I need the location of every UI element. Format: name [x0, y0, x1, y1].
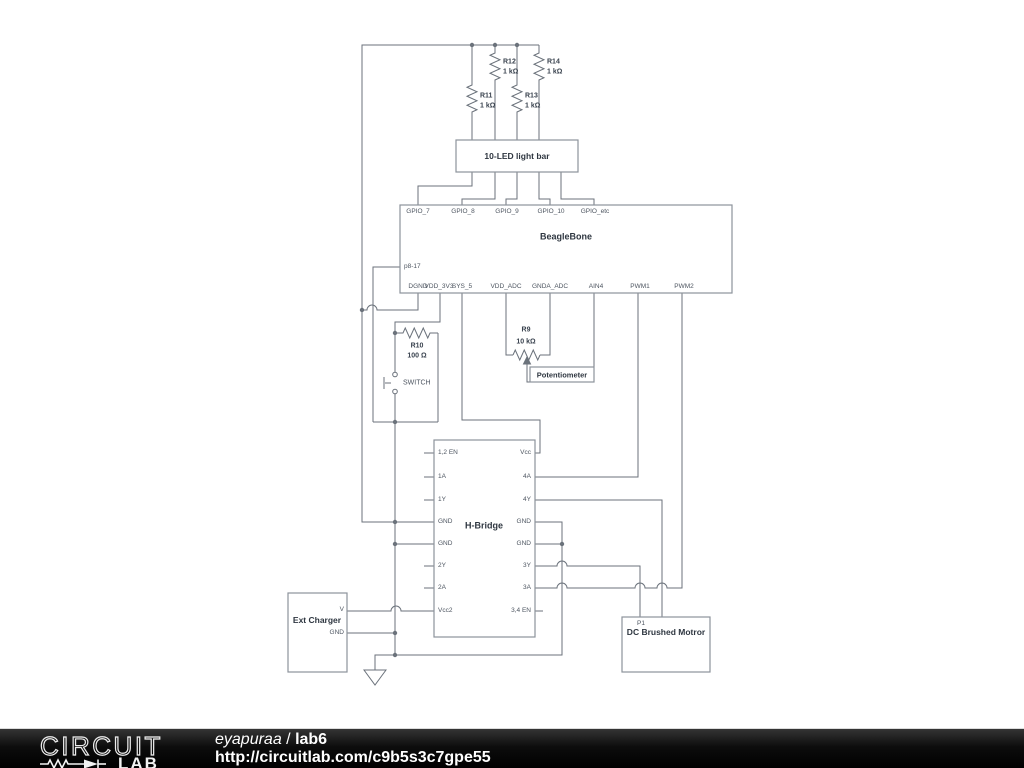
ext-charger-label: Ext Charger	[293, 616, 341, 625]
diode-icon	[84, 760, 98, 768]
beaglebone-label: BeagleBone	[540, 233, 592, 242]
wire-p8-17	[373, 267, 400, 422]
hb-pin-4a: 4A	[523, 474, 531, 481]
pin-gpio7: GPIO_7	[406, 209, 429, 216]
wire-4y-motor	[535, 500, 662, 617]
project-name: lab6	[295, 731, 327, 748]
hb-pin-4y: 4Y	[523, 497, 531, 504]
ext-charger-pin-v: V	[340, 607, 344, 614]
wire-3y-motor	[535, 561, 640, 617]
circuitlab-schematic-page: R11 1 kΩ R12 1 kΩ R13 1 kΩ R14 1 kΩ R10 …	[0, 0, 1024, 768]
component-outlines	[288, 140, 732, 672]
switch-label: SWITCH	[403, 380, 431, 387]
wire-gpio9	[506, 172, 517, 205]
beaglebone-box	[400, 205, 732, 293]
switch-symbol	[384, 333, 397, 422]
hb-pin-2y: 2Y	[438, 563, 446, 570]
ground-symbol	[364, 670, 386, 685]
footer-title: eyapuraa / lab6	[215, 731, 327, 749]
hb-pin-34en: 3,4 EN	[511, 608, 531, 615]
hbridge-label: H-Bridge	[465, 522, 503, 531]
wire-extv-vcc2	[347, 606, 434, 611]
pin-gnda-adc: GNDA_ADC	[532, 284, 568, 291]
hb-pin-1y: 1Y	[438, 497, 446, 504]
hb-pin-gnd1: GND	[438, 519, 452, 526]
wire-gpio-etc	[561, 172, 594, 205]
wire-vdd-adc	[506, 293, 513, 355]
circuitlab-logo-lab: LAB	[118, 754, 159, 768]
pin-gpio8: GPIO_8	[451, 209, 474, 216]
r14-ref: R14	[547, 59, 560, 66]
r12-value: 1 kΩ	[503, 69, 518, 76]
footer-bar: CIRCUIT LAB	[0, 728, 1024, 768]
pin-pwm2: PWM2	[674, 284, 694, 291]
schematic-canvas	[0, 0, 1024, 728]
hb-pin-3y: 3Y	[523, 563, 531, 570]
author-name: eyapuraa	[215, 731, 282, 748]
hb-pin-2a: 2A	[438, 585, 446, 592]
wire-gnda-adc	[540, 293, 550, 355]
pin-vdd-adc: VDD_ADC	[490, 284, 521, 291]
r12-ref: R12	[503, 59, 516, 66]
resistor-r10-body	[395, 328, 438, 338]
motor-box	[622, 617, 710, 672]
pin-ain4: AIN4	[589, 284, 603, 291]
r11-ref: R11	[480, 93, 492, 100]
pin-gpio-etc: GPIO_etc	[581, 209, 610, 216]
hb-pin-12en: 1,2 EN	[438, 450, 458, 457]
wire-sys5-vcc	[462, 293, 540, 453]
r10-ref: R10	[411, 343, 424, 350]
pin-vdd3v3: VDD_3V3	[425, 284, 454, 291]
pin-gpio9: GPIO_9	[495, 209, 518, 216]
wire-gpio8	[462, 172, 495, 205]
pin-sys5: SYS_5	[452, 284, 472, 291]
wire-gpio10	[539, 172, 550, 205]
hb-pin-3a: 3A	[523, 585, 531, 592]
hb-pin-gnd2: GND	[438, 541, 452, 548]
circuit-url[interactable]: http://circuitlab.com/c9b5s3c7gpe55	[215, 749, 491, 767]
r13-ref: R13	[525, 93, 538, 100]
hb-pin-gnd4: GND	[517, 541, 531, 548]
pin-pwm1: PWM1	[630, 284, 650, 291]
pin-gpio10: GPIO_10	[537, 209, 564, 216]
potentiometer-label: Potentiometer	[537, 371, 587, 379]
switch-actuator	[384, 377, 391, 389]
resistor-r11-body	[467, 45, 477, 140]
r9-ref: R9	[522, 327, 531, 334]
title-separator: /	[282, 731, 295, 748]
wire-dgnd	[362, 293, 418, 310]
hb-pin-1a: 1A	[438, 474, 446, 481]
led-bar-label: 10-LED light bar	[484, 152, 549, 161]
hb-pin-gnd3: GND	[517, 519, 531, 526]
r11-value: 1 kΩ	[480, 103, 495, 110]
ext-charger-pin-gnd: GND	[330, 630, 344, 637]
r10-value: 100 Ω	[407, 353, 426, 360]
wire-gpio7	[418, 172, 472, 205]
r14-value: 1 kΩ	[547, 69, 562, 76]
r13-value: 1 kΩ	[525, 103, 540, 110]
circuitlab-logo-symbol	[40, 758, 120, 768]
r9-value: 10 kΩ	[516, 339, 535, 346]
hb-pin-vcc: Vcc	[520, 450, 531, 457]
pin-p8-17: p8-17	[404, 264, 421, 271]
motor-label: DC Brushed Motror	[627, 628, 705, 637]
hb-pin-vcc2: Vcc2	[438, 608, 452, 615]
